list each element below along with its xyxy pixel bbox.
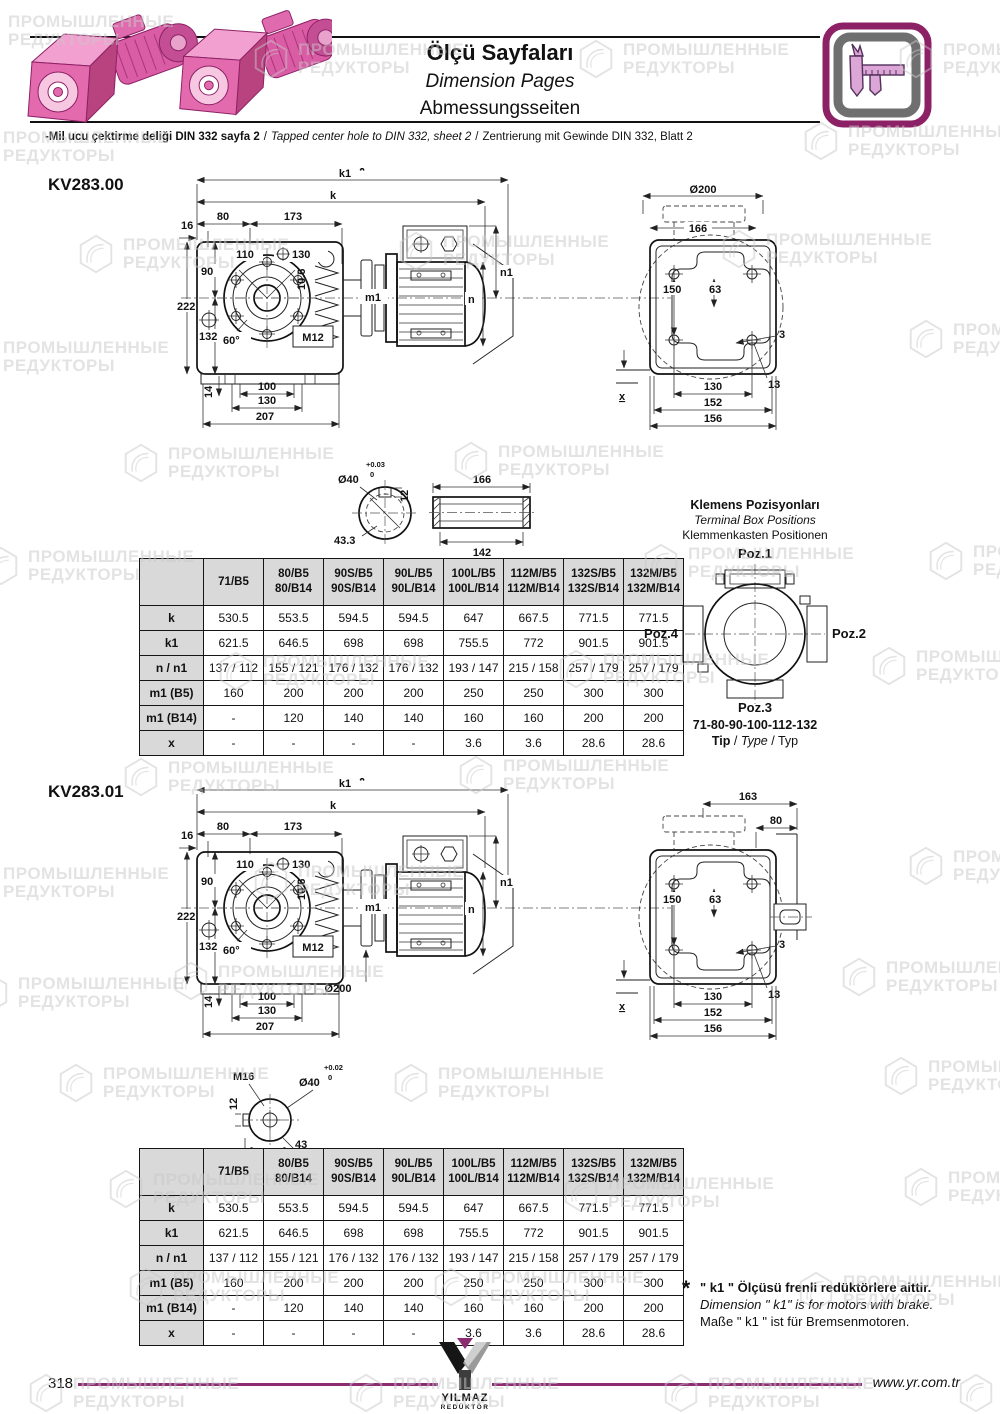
svg-text:90: 90 (201, 876, 213, 888)
svg-text:207: 207 (256, 411, 274, 423)
dimension-cell: 300 (624, 1271, 684, 1296)
table-row: k530.5553.5594.5594.5647667.5771.5771.5 (140, 1196, 684, 1221)
type-label-tr: Tip (712, 734, 731, 748)
column-header: 100L/B5100L/B14 (444, 559, 504, 606)
svg-text:0: 0 (328, 1073, 332, 1082)
footer-rule-left (78, 1383, 438, 1386)
footnote-english: Dimension " k1" is for motors with brake… (700, 1297, 980, 1314)
solid-shaft-detail: M16 Ø40 +0.02 0 12 43 (225, 1058, 395, 1158)
svg-text:m1: m1 (365, 292, 381, 304)
gearmotor-photo (28, 4, 204, 122)
table-row: k1621.5646.5698698755.5772901.5901.5 (140, 1221, 684, 1246)
svg-text:156: 156 (704, 1023, 722, 1035)
dimension-cell: 193 / 147 (444, 1246, 504, 1271)
dimension-cell: - (264, 1321, 324, 1346)
svg-text:80: 80 (770, 815, 782, 827)
side-view-drawing: k1 * k 80 173 16 222 90 132 (175, 778, 675, 1070)
svg-text:222: 222 (177, 911, 195, 923)
hexagon-watermark: ПРОМЫШЛЕННЫЕРЕДУКТОРЫ (905, 845, 1000, 887)
dimension-cell: 140 (384, 1296, 444, 1321)
dimension-cell: 200 (384, 681, 444, 706)
dimension-cell: - (384, 1321, 444, 1346)
table-corner (140, 559, 204, 606)
din-note: -Mil ucu çektirme deliği DIN 332 sayfa 2… (45, 131, 693, 143)
hexagon-watermark-icon (905, 318, 947, 360)
svg-text:156: 156 (704, 413, 722, 425)
svg-text:m1: m1 (365, 902, 381, 914)
svg-text:130: 130 (292, 249, 310, 261)
svg-text:12: 12 (399, 490, 411, 502)
svg-text:14: 14 (203, 995, 215, 1008)
hexagon-watermark-icon (838, 956, 880, 998)
svg-text:222: 222 (177, 301, 195, 313)
svg-text:63: 63 (709, 894, 721, 906)
svg-text:80: 80 (217, 211, 229, 223)
svg-text:Poz.4: Poz.4 (644, 626, 679, 641)
rear-view-drawing: 163 80 150 63 3 13 130 (608, 790, 818, 1058)
hexagon-watermark: ПРОМЫШЛЕННЫЕРЕДУКТОРЫ (900, 1166, 1000, 1208)
k1-footnote: * " k1 " Ölçüsü frenli redüktörlere aitt… (700, 1280, 980, 1331)
row-label: n / n1 (140, 1246, 204, 1271)
dimension-cell: 160 (444, 1296, 504, 1321)
svg-text:207: 207 (256, 1021, 274, 1033)
terminal-box-position-drawing: Poz.1 Poz.2 Poz.3 Poz.4 (640, 546, 870, 716)
svg-text:Poz.1: Poz.1 (738, 546, 772, 561)
dimension-cell: 698 (384, 1221, 444, 1246)
dimension-cell: 621.5 (204, 631, 264, 656)
dimension-cell: 257 / 179 (564, 1246, 624, 1271)
dimension-cell: 755.5 (444, 1221, 504, 1246)
table-row: m1 (B14)-120140140160160200200 (140, 706, 684, 731)
table-row: k530.5553.5594.5594.5647667.5771.5771.5 (140, 606, 684, 631)
terminal-title-turkish: Klemens Pozisyonları (630, 498, 880, 513)
dimension-cell: 647 (444, 1196, 504, 1221)
svg-text:100: 100 (258, 381, 276, 393)
row-label: n / n1 (140, 656, 204, 681)
dimension-cell: 28.6 (564, 1321, 624, 1346)
terminal-title-german: Klemmenkasten Positionen (630, 528, 880, 543)
table-row: x----3.63.628.628.6 (140, 1321, 684, 1346)
dimension-cell: 120 (264, 706, 324, 731)
dimension-cell: 771.5 (564, 606, 624, 631)
dimension-cell: 160 (204, 1271, 264, 1296)
svg-text:k: k (330, 800, 337, 812)
title-german: Abmessungsseiten (330, 98, 670, 120)
dimension-cell: 160 (204, 681, 264, 706)
dimension-cell: 250 (504, 1271, 564, 1296)
svg-text:Ø200: Ø200 (325, 983, 352, 995)
footer-rule-right (492, 1383, 862, 1386)
row-label: k1 (140, 1221, 204, 1246)
column-header: 71/B5 (204, 559, 264, 606)
svg-text:M12: M12 (302, 942, 323, 954)
hexagon-watermark-icon (900, 1166, 942, 1208)
dimension-cell: 200 (264, 1271, 324, 1296)
dimension-cell: - (204, 1296, 264, 1321)
dimension-cell: 176 / 132 (384, 1246, 444, 1271)
dimension-cell: 176 / 132 (324, 1246, 384, 1271)
dimension-cell: 698 (384, 631, 444, 656)
dimension-cell: 647 (444, 606, 504, 631)
svg-text:13: 13 (768, 379, 780, 391)
dimension-cell: 160 (504, 1296, 564, 1321)
type-separator: / (771, 734, 774, 748)
note-separator: / (260, 131, 271, 143)
column-header: 80/B580/B14 (264, 1149, 324, 1196)
hexagon-watermark: ПРОМЫШЛЕННЫЕРЕДУКТОРЫ (868, 645, 1000, 687)
dimension-cell: 257 / 179 (564, 656, 624, 681)
terminal-title-english: Terminal Box Positions (630, 513, 880, 528)
dimension-cell: - (204, 706, 264, 731)
row-label: m1 (B5) (140, 1271, 204, 1296)
column-header: 90L/B590L/B14 (384, 559, 444, 606)
row-label: m1 (B14) (140, 706, 204, 731)
column-header: 132M/B5132M/B14 (624, 1149, 684, 1196)
svg-text:Poz.2: Poz.2 (832, 626, 866, 641)
dimension-cell: 771.5 (624, 1196, 684, 1221)
dimension-cell: 28.6 (564, 731, 624, 756)
hexagon-watermark-icon (660, 1372, 702, 1414)
row-label: x (140, 731, 204, 756)
column-header: 100L/B5100L/B14 (444, 1149, 504, 1196)
svg-text:3: 3 (779, 329, 785, 341)
dimension-cell: 698 (324, 631, 384, 656)
svg-text:80: 80 (217, 821, 229, 833)
note-english: Tapped center hole to DIN 332, sheet 2 (271, 131, 471, 143)
dimension-cell: 594.5 (384, 606, 444, 631)
dimension-cell: 667.5 (504, 606, 564, 631)
dimension-cell: 200 (624, 1296, 684, 1321)
dimension-cell: 200 (324, 1271, 384, 1296)
dimension-cell: 594.5 (324, 606, 384, 631)
column-header: 132S/B5132S/B14 (564, 1149, 624, 1196)
svg-text:x: x (619, 391, 626, 403)
svg-text:k1: k1 (339, 778, 351, 790)
dimension-cell: 901.5 (564, 1221, 624, 1246)
caliper-icon (822, 22, 932, 128)
svg-text:*: * (359, 168, 366, 180)
column-header: 112M/B5112M/B14 (504, 1149, 564, 1196)
asterisk: * (682, 1275, 690, 1302)
svg-text:M16: M16 (233, 1071, 254, 1083)
dimension-table: 71/B580/B580/B1490S/B590S/B1490L/B590L/B… (139, 1148, 684, 1346)
dimension-cell: 3.6 (444, 731, 504, 756)
dimension-cell: 257 / 179 (624, 1246, 684, 1271)
dimension-cell: 200 (264, 681, 324, 706)
dimension-cell: 300 (564, 1271, 624, 1296)
svg-text:43.3: 43.3 (334, 535, 355, 547)
page-number: 318 (48, 1375, 73, 1392)
dimension-cell: 140 (384, 706, 444, 731)
table-row: m1 (B5)160200200200250250300300 (140, 681, 684, 706)
dimension-cell: 155 / 121 (264, 656, 324, 681)
dimension-cell: 772 (504, 631, 564, 656)
type-separator: / (734, 734, 737, 748)
svg-text:14: 14 (203, 385, 215, 398)
dimension-cell: 594.5 (324, 1196, 384, 1221)
dimension-cell: 137 / 112 (204, 656, 264, 681)
svg-text:60°: 60° (223, 945, 240, 957)
column-header: 90S/B590S/B14 (324, 1149, 384, 1196)
svg-text:130: 130 (292, 859, 310, 871)
svg-text:90: 90 (201, 266, 213, 278)
row-label: k (140, 1196, 204, 1221)
hexagon-watermark-icon (345, 1372, 387, 1414)
dimension-cell: 3.6 (504, 731, 564, 756)
dimension-cell: 772 (504, 1221, 564, 1246)
dimension-cell: 176 / 132 (384, 656, 444, 681)
dimension-cell: 200 (564, 706, 624, 731)
website-link[interactable]: www.yr.com.tr (810, 1374, 960, 1390)
svg-text:10.6: 10.6 (296, 879, 308, 900)
column-header: 132S/B5132S/B14 (564, 559, 624, 606)
svg-text:n: n (468, 294, 475, 306)
dimension-cell: 160 (444, 706, 504, 731)
logo-name: YILMAZ (427, 1392, 503, 1404)
column-header: 80/B580/B14 (264, 559, 324, 606)
hexagon-watermark-icon (868, 645, 910, 687)
svg-text:100: 100 (258, 991, 276, 1003)
section-code: KV283.00 (48, 175, 124, 195)
svg-text:+0.03: +0.03 (366, 460, 385, 469)
type-label-de: Typ (778, 734, 798, 748)
dimension-cell: 193 / 147 (444, 656, 504, 681)
dimension-cell: - (264, 731, 324, 756)
row-label: k1 (140, 631, 204, 656)
svg-text:k: k (330, 190, 337, 202)
yilmaz-logo (437, 1338, 493, 1394)
pink-gearmotor-photos (20, 4, 332, 132)
svg-text:150: 150 (663, 284, 681, 296)
dimension-cell: 215 / 158 (504, 1246, 564, 1271)
row-label: m1 (B14) (140, 1296, 204, 1321)
hexagon-watermark-icon (925, 540, 967, 582)
note-turkish: -Mil ucu çektirme deliği DIN 332 sayfa 2 (45, 131, 260, 143)
dimension-cell: 137 / 112 (204, 1246, 264, 1271)
dimension-cell: 646.5 (264, 1221, 324, 1246)
dimension-cell: 200 (384, 1271, 444, 1296)
footnote-german: Maße " k1 " ist für Bremsenmotoren. (700, 1314, 980, 1331)
svg-text:130: 130 (258, 1005, 276, 1017)
dimension-cell: 771.5 (564, 1196, 624, 1221)
svg-text:M12: M12 (302, 332, 323, 344)
section-code: KV283.01 (48, 782, 124, 802)
hexagon-watermark: ПРОМЫШЛЕННЫЕРЕДУКТОРЫ (0, 972, 184, 1014)
svg-text:166: 166 (689, 223, 707, 235)
dimension-cell: 160 (504, 706, 564, 731)
hexagon-watermark-icon (120, 756, 162, 798)
title-turkish: Ölçü Sayfaları (330, 40, 670, 66)
svg-text:Ø200: Ø200 (690, 184, 717, 196)
dimension-cell: 901.5 (624, 1221, 684, 1246)
table-row: n / n1137 / 112155 / 121176 / 132176 / 1… (140, 1246, 684, 1271)
dimension-cell: 250 (504, 681, 564, 706)
type-label-en: Type (741, 734, 768, 748)
svg-text:130: 130 (704, 381, 722, 393)
hexagon-watermark-icon (905, 845, 947, 887)
note-german: Zentrierung mit Gewinde DIN 332, Blatt 2 (482, 131, 692, 143)
dimension-cell: - (204, 731, 264, 756)
svg-text:3: 3 (779, 939, 785, 951)
hexagon-watermark: ПРОМЫШЛЕННЫЕРЕДУКТОРЫ (0, 862, 169, 904)
svg-text:173: 173 (284, 211, 302, 223)
terminal-box-titles: Klemens Pozisyonları Terminal Box Positi… (630, 498, 880, 543)
svg-text:n1: n1 (500, 267, 513, 279)
catalog-page: Ölçü Sayfaları Dimension Pages Abmessung… (0, 0, 1000, 1414)
svg-text:173: 173 (284, 821, 302, 833)
logo-subtitle: REDÜKTÖR (427, 1404, 503, 1411)
dimension-cell: 3.6 (504, 1321, 564, 1346)
row-label: m1 (B5) (140, 681, 204, 706)
dimension-cell: 140 (324, 706, 384, 731)
svg-text:130: 130 (704, 991, 722, 1003)
column-header: 90L/B590L/B14 (384, 1149, 444, 1196)
hexagon-watermark: ПРОМЫШЛЕННЫЕРЕДУКТОРЫ (925, 540, 1000, 582)
svg-text:Ø40: Ø40 (338, 474, 359, 486)
dimension-cell: - (324, 1321, 384, 1346)
table-row: m1 (B5)160200200200250250300300 (140, 1271, 684, 1296)
svg-text:150: 150 (663, 894, 681, 906)
dimension-cell: 120 (264, 1296, 324, 1321)
hollow-shaft-detail: +0.03 0 Ø40 12 43.3 166 142 (330, 450, 540, 562)
dimension-cell: 215 / 158 (504, 656, 564, 681)
svg-text:16: 16 (181, 220, 193, 232)
dimension-cell: 646.5 (264, 631, 324, 656)
hexagon-watermark-icon (55, 1062, 97, 1104)
svg-text:110: 110 (236, 249, 254, 261)
hexagon-watermark-icon (0, 545, 22, 587)
dimension-cell: 594.5 (384, 1196, 444, 1221)
dimension-cell: 300 (564, 681, 624, 706)
svg-text:x: x (619, 1001, 626, 1013)
svg-text:n: n (468, 904, 475, 916)
dimension-cell: 530.5 (204, 1196, 264, 1221)
footnote-turkish: " k1 " Ölçüsü frenli redüktörlere aittir… (700, 1280, 980, 1297)
svg-text:152: 152 (704, 397, 722, 409)
svg-text:132: 132 (199, 941, 217, 953)
svg-text:n1: n1 (500, 877, 513, 889)
dimension-cell: 530.5 (204, 606, 264, 631)
svg-text:152: 152 (704, 1007, 722, 1019)
dimension-cell: - (384, 731, 444, 756)
rear-view-drawing: Ø200 166 150 63 3 13 130 152 (608, 180, 808, 448)
dimension-cell: 200 (564, 1296, 624, 1321)
svg-text:110: 110 (236, 859, 254, 871)
svg-text:+0.02: +0.02 (324, 1063, 343, 1072)
dimension-cell: 155 / 121 (264, 1246, 324, 1271)
dimension-cell: 553.5 (264, 1196, 324, 1221)
hexagon-watermark-icon (880, 1055, 922, 1097)
dimension-cell: - (324, 731, 384, 756)
dimension-cell: 901.5 (564, 631, 624, 656)
column-header: 71/B5 (204, 1149, 264, 1196)
page-title: Ölçü Sayfaları Dimension Pages Abmessung… (330, 40, 670, 120)
hexagon-watermark: ПРОМЫШЛЕННЫЕРЕДУКТОРЫ (955, 1372, 1000, 1414)
terminal-box-sizes: 71-80-90-100-112-132 (630, 718, 880, 732)
column-header: 90S/B590S/B14 (324, 559, 384, 606)
title-english: Dimension Pages (330, 71, 670, 93)
note-separator: / (471, 131, 482, 143)
svg-text:63: 63 (709, 284, 721, 296)
hexagon-watermark: ПРОМЫШЛЕННЫЕРЕДУКТОРЫ (905, 318, 1000, 360)
dimension-cell: 200 (324, 681, 384, 706)
hexagon-watermark-icon (75, 233, 117, 275)
svg-text:130: 130 (258, 395, 276, 407)
hexagon-watermark: ПРОМЫШЛЕННЫЕРЕДУКТОРЫ (880, 1055, 1000, 1097)
column-header: 112M/B5112M/B14 (504, 559, 564, 606)
svg-text:16: 16 (181, 830, 193, 842)
table-row: m1 (B14)-120140140160160200200 (140, 1296, 684, 1321)
svg-text:60°: 60° (223, 335, 240, 347)
hexagon-watermark: ПРОМЫШЛЕННЫЕРЕДУКТОРЫ (838, 956, 1000, 998)
dimension-table: 71/B580/B580/B1490S/B590S/B1490L/B590L/B… (139, 558, 684, 756)
table-row: x----3.63.628.628.6 (140, 731, 684, 756)
svg-text:Ø40: Ø40 (299, 1077, 320, 1089)
row-label: k (140, 606, 204, 631)
hexagon-watermark-icon (0, 10, 2, 52)
dimension-cell: 553.5 (264, 606, 324, 631)
dimension-cell: 250 (444, 1271, 504, 1296)
table-row: k1621.5646.5698698755.5772901.5901.5 (140, 631, 684, 656)
hexagon-watermark-icon (120, 442, 162, 484)
svg-text:163: 163 (739, 791, 757, 803)
svg-text:166: 166 (473, 474, 491, 486)
terminal-box-type-line: Tip / Type / Typ (630, 734, 880, 748)
svg-text:0: 0 (370, 470, 374, 479)
dimension-cell: 176 / 132 (324, 656, 384, 681)
svg-text:10.6: 10.6 (296, 269, 308, 290)
dimension-cell: 667.5 (504, 1196, 564, 1221)
svg-text:13: 13 (768, 989, 780, 1001)
side-view-drawing: k1 * k 80 173 16 222 90 132 (175, 168, 675, 460)
svg-text:12: 12 (228, 1098, 240, 1110)
dimension-cell: 28.6 (624, 1321, 684, 1346)
dimension-cell: 140 (324, 1296, 384, 1321)
table-row: n / n1137 / 112155 / 121176 / 132176 / 1… (140, 656, 684, 681)
svg-text:*: * (359, 778, 366, 790)
hexagon-watermark-icon (0, 972, 12, 1014)
dimension-cell: 698 (324, 1221, 384, 1246)
hexagon-watermark: ПРОМЫШЛЕННЫЕРЕДУКТОРЫ (0, 336, 169, 378)
dimension-cell: - (204, 1321, 264, 1346)
dimension-cell: 250 (444, 681, 504, 706)
hexagon-watermark-icon (955, 1372, 997, 1414)
svg-text:132: 132 (199, 331, 217, 343)
dimension-cell: 621.5 (204, 1221, 264, 1246)
dimension-cell: 755.5 (444, 631, 504, 656)
svg-text:Poz.3: Poz.3 (738, 700, 772, 715)
row-label: x (140, 1321, 204, 1346)
svg-text:k1: k1 (339, 168, 351, 180)
table-corner (140, 1149, 204, 1196)
